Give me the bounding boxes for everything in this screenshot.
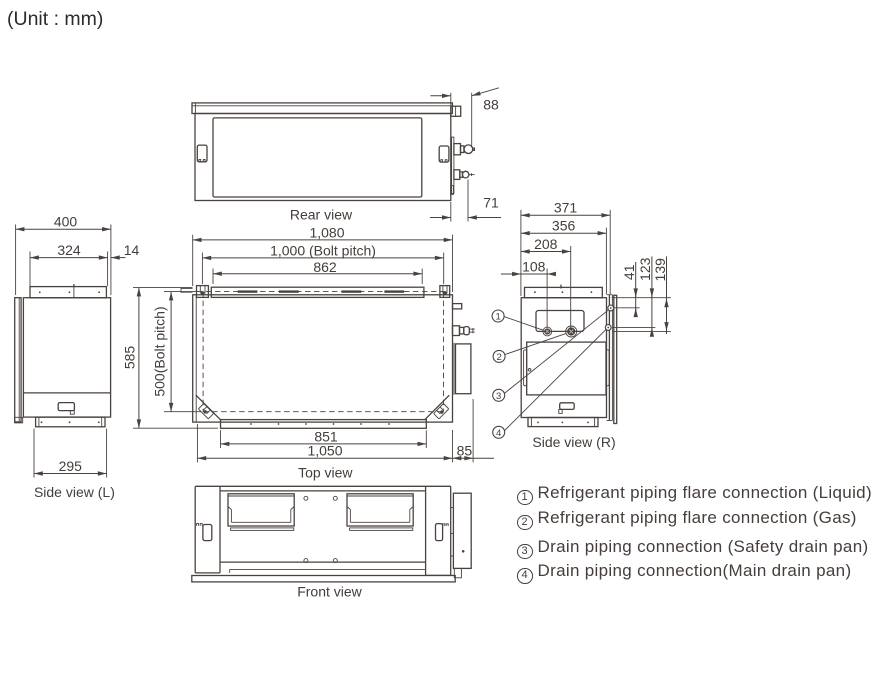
svg-text:1,050: 1,050 [307, 443, 342, 459]
svg-text:500(Bolt pitch): 500(Bolt pitch) [152, 306, 168, 396]
svg-text:85: 85 [457, 442, 473, 458]
svg-text:208: 208 [534, 236, 558, 252]
svg-text:356: 356 [552, 218, 576, 234]
svg-text:41: 41 [621, 264, 637, 280]
svg-text:1,000 (Bolt pitch): 1,000 (Bolt pitch) [270, 242, 376, 258]
svg-text:88: 88 [483, 97, 499, 113]
svg-text:71: 71 [483, 195, 499, 211]
svg-text:123: 123 [637, 257, 653, 281]
svg-text:400: 400 [54, 214, 78, 230]
svg-text:Top view: Top view [298, 464, 353, 480]
svg-text:2: 2 [496, 352, 501, 363]
svg-text:14: 14 [124, 242, 140, 258]
svg-text:Front view: Front view [297, 584, 362, 600]
svg-text:1: 1 [495, 312, 500, 323]
svg-text:862: 862 [313, 259, 337, 275]
svg-text:3: 3 [496, 391, 501, 402]
svg-text:4: 4 [496, 428, 501, 439]
svg-text:324: 324 [57, 242, 81, 258]
svg-text:371: 371 [554, 200, 578, 216]
svg-text:108: 108 [522, 258, 546, 274]
svg-text:(Unit : mm): (Unit : mm) [7, 8, 103, 30]
svg-text:Side view (L): Side view (L) [34, 484, 115, 500]
svg-text:1,080: 1,080 [309, 225, 344, 241]
svg-text:295: 295 [59, 458, 83, 474]
svg-text:Side view (R): Side view (R) [532, 434, 615, 450]
svg-text:Rear view: Rear view [290, 207, 353, 223]
svg-text:139: 139 [652, 258, 668, 282]
svg-text:585: 585 [122, 346, 138, 370]
